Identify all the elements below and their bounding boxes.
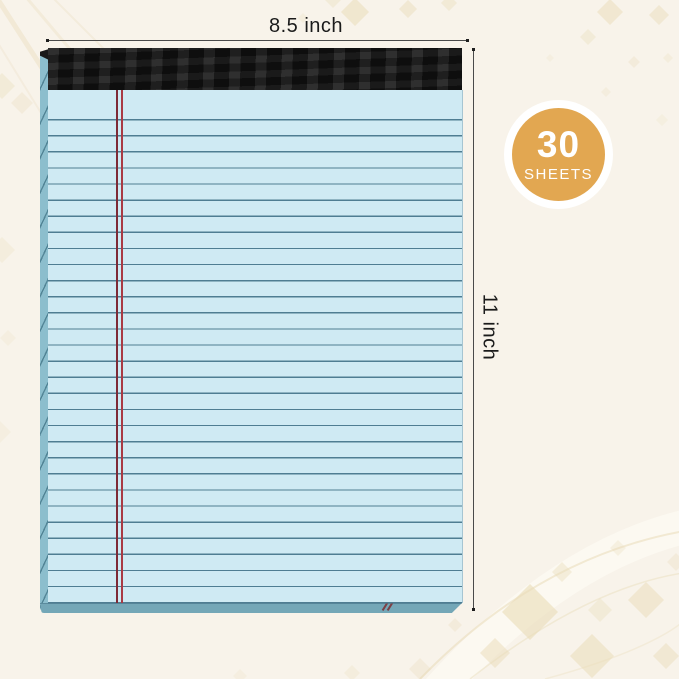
margin-line xyxy=(121,90,123,603)
sheets-badge: 30 SHEETS xyxy=(504,100,613,209)
dimension-height-line xyxy=(473,50,474,610)
sheet-stack-bottom-edge xyxy=(40,603,462,613)
notepad-binding xyxy=(48,48,462,92)
sheets-count: 30 xyxy=(537,126,580,163)
dimension-height-label: 11 inch xyxy=(478,294,501,361)
product-image: 8.5 inch 11 inch 30 SHEETS xyxy=(0,0,679,679)
dimension-endpoint xyxy=(472,48,475,51)
ruled-lines xyxy=(48,119,462,604)
sheets-unit: SHEETS xyxy=(524,166,593,183)
sheets-badge-circle: 30 SHEETS xyxy=(512,108,605,201)
dimension-endpoint xyxy=(472,608,475,611)
dimension-width-line xyxy=(48,40,468,41)
notepad xyxy=(0,0,679,679)
notepad-paper xyxy=(48,90,463,603)
dimension-width-label: 8.5 inch xyxy=(48,15,516,38)
margin-line xyxy=(116,90,118,603)
dimension-endpoint xyxy=(466,39,469,42)
dimension-endpoint xyxy=(46,39,49,42)
